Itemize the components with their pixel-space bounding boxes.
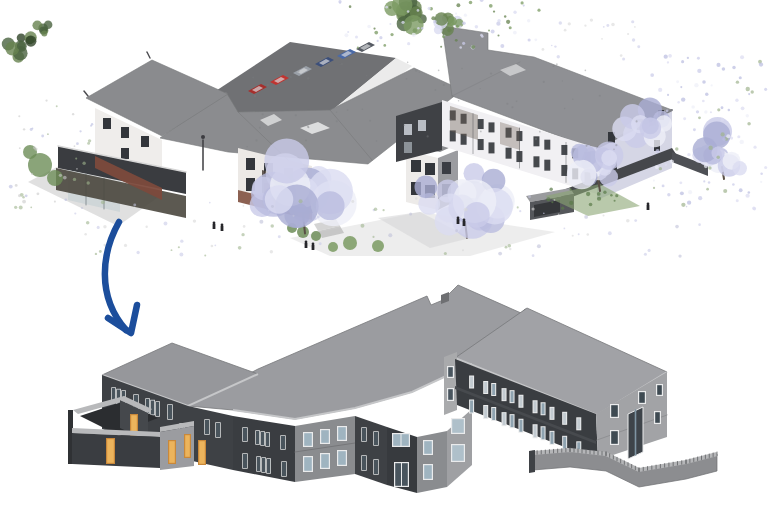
window-glass (511, 391, 514, 402)
point-noise (133, 204, 136, 207)
tree-foliage (415, 176, 438, 199)
point-noise (611, 23, 615, 27)
point-noise (41, 135, 44, 138)
point-noise (667, 94, 669, 96)
person-body (213, 224, 216, 229)
window-glass (470, 377, 473, 388)
point-noise (241, 233, 244, 236)
point-noise (103, 225, 106, 228)
door-panel (185, 435, 190, 457)
point-noise (389, 6, 392, 9)
point-noise (578, 233, 580, 235)
point-noise (443, 84, 445, 86)
point-noise (76, 142, 79, 145)
point-noise (634, 26, 636, 28)
grass-dot (610, 194, 613, 197)
point-noise (698, 116, 701, 119)
car (356, 42, 375, 52)
point-noise (462, 249, 464, 251)
point-noise (259, 220, 263, 224)
window-glass (338, 451, 346, 465)
point-noise (517, 206, 519, 208)
point-noise (339, 64, 340, 65)
point-noise (97, 226, 100, 229)
point-noise (752, 206, 756, 210)
point-noise (717, 108, 720, 111)
point-noise (452, 22, 455, 25)
point-noise (711, 84, 713, 86)
point-noise (634, 219, 637, 222)
window-glass (452, 419, 464, 433)
point-noise (267, 84, 269, 86)
point-noise (681, 60, 684, 63)
point-noise (751, 90, 754, 93)
point-noise (299, 199, 303, 203)
point-noise (421, 27, 423, 29)
point-noise (72, 113, 74, 115)
point-noise (373, 27, 375, 29)
point-noise (347, 109, 349, 111)
point-noise (559, 21, 562, 24)
point-noise (305, 139, 307, 141)
point-noise (721, 106, 724, 109)
point-noise (372, 236, 374, 238)
point-noise (113, 205, 115, 207)
point-noise (558, 214, 560, 216)
point-noise (572, 235, 574, 237)
window-lit (418, 120, 426, 131)
point-noise (25, 194, 28, 197)
window (533, 156, 539, 167)
point-noise (556, 63, 558, 65)
grass-dot (569, 201, 573, 205)
window-glass (550, 408, 553, 419)
point-noise (568, 22, 571, 25)
door-panel (169, 441, 175, 463)
point-noise (45, 99, 47, 101)
point-noise (22, 200, 26, 204)
point-noise (336, 112, 337, 113)
point-noise (471, 45, 475, 49)
point-noise (564, 108, 565, 109)
point-noise (349, 5, 352, 8)
tree-foliage (435, 12, 448, 25)
point-noise (336, 120, 338, 122)
point-noise (382, 209, 384, 211)
point-noise (341, 63, 343, 65)
person-head (463, 219, 466, 222)
point-noise (554, 45, 556, 47)
point-noise (455, 13, 457, 15)
window-glass (492, 408, 495, 420)
point-noise (18, 115, 20, 117)
point-noise (537, 244, 541, 248)
point-noise (59, 174, 62, 177)
point-noise (506, 20, 510, 24)
person-body (457, 219, 460, 224)
window (103, 118, 111, 129)
point-noise (667, 193, 670, 196)
person (221, 224, 224, 231)
point-cloud-view (2, 0, 767, 258)
point-noise (698, 223, 701, 226)
point-noise (464, 208, 468, 212)
tree-foliage (640, 117, 662, 139)
point-noise (599, 95, 601, 97)
point-noise (435, 89, 437, 91)
window-glass (542, 403, 545, 414)
window-glass (321, 430, 329, 443)
bush (343, 236, 357, 250)
point-noise (746, 114, 749, 117)
point-noise (665, 164, 668, 167)
window (533, 136, 539, 146)
window-glass (519, 396, 522, 407)
point-noise (603, 215, 605, 217)
point-noise (705, 92, 708, 95)
tree-point-cloud (2, 31, 37, 62)
point-noise (528, 38, 531, 41)
point-noise (407, 62, 409, 64)
window-glass (362, 428, 366, 441)
point-noise (664, 55, 668, 59)
point-noise (475, 25, 478, 28)
point-noise (626, 219, 630, 223)
point-noise (648, 249, 651, 252)
point-noise (584, 215, 588, 219)
point-noise (732, 66, 735, 69)
point-noise (271, 205, 274, 208)
point-noise (613, 149, 615, 151)
point-noise (553, 65, 555, 67)
point-noise (694, 83, 698, 87)
point-noise (704, 110, 707, 113)
point-noise (608, 231, 612, 235)
transformation-arrow (105, 222, 137, 333)
point-noise (290, 76, 292, 78)
bim-wall-grey (295, 416, 355, 482)
grass-dot (597, 192, 601, 196)
point-noise (74, 212, 76, 214)
grass-dot (586, 192, 590, 196)
point-noise (480, 0, 484, 2)
curved-boundary-wall (533, 450, 717, 487)
point-noise (180, 239, 183, 242)
point-noise (748, 93, 750, 95)
point-noise (209, 202, 211, 204)
person-head (213, 222, 216, 225)
point-noise (462, 42, 465, 45)
window-glass (611, 431, 618, 444)
tree-foliage (25, 36, 36, 47)
point-noise (730, 137, 733, 140)
point-noise (585, 69, 587, 71)
window-glass (611, 405, 618, 417)
point-noise (73, 178, 76, 181)
point-noise (438, 70, 440, 72)
point-noise (36, 192, 39, 195)
point-noise (270, 250, 273, 253)
point-noise (500, 44, 504, 48)
point-noise (99, 250, 102, 253)
point-noise (178, 246, 180, 248)
point-noise (462, 21, 466, 25)
person (213, 222, 216, 229)
window-glass (267, 459, 270, 473)
tree-foliage (571, 144, 588, 161)
point-noise (362, 108, 364, 110)
door-panel (107, 439, 114, 463)
point-noise (675, 225, 679, 229)
window-glass (563, 437, 566, 449)
point-noise (401, 21, 404, 24)
point-noise (262, 113, 264, 115)
point-noise (543, 81, 545, 83)
point-noise (428, 7, 431, 10)
point-noise (179, 253, 183, 257)
point-noise (427, 135, 429, 137)
point-noise (64, 198, 67, 201)
point-noise (444, 252, 447, 255)
point-noise (636, 120, 638, 122)
point-noise (708, 146, 712, 150)
point-noise (489, 4, 493, 8)
point-noise (86, 181, 89, 184)
point-noise (18, 194, 21, 197)
roof-antenna (84, 91, 88, 96)
point-noise (686, 206, 688, 208)
point-noise (675, 147, 678, 150)
window-glass (262, 458, 265, 472)
point-noise (681, 203, 685, 207)
point-noise (459, 25, 461, 27)
point-noise (81, 207, 83, 209)
point-noise (702, 80, 706, 84)
point-noise (632, 38, 635, 41)
point-noise (511, 106, 513, 108)
point-noise (534, 38, 537, 41)
window-glass (266, 433, 269, 446)
person-body (312, 245, 315, 250)
window-glass (542, 427, 545, 439)
point-noise (740, 55, 744, 59)
window-glass (448, 367, 453, 377)
door-panel (199, 441, 205, 464)
point-noise (696, 110, 699, 113)
point-noise (513, 10, 516, 13)
point-noise (764, 88, 767, 91)
window-glass (563, 413, 566, 424)
point-noise (411, 19, 414, 22)
window-glass (503, 413, 506, 425)
point-noise (670, 160, 674, 164)
window-glass (657, 385, 662, 395)
window-glass (256, 431, 259, 444)
point-noise (379, 36, 382, 39)
point-noise (469, 1, 473, 5)
point-noise (656, 149, 660, 153)
point-noise (637, 45, 640, 48)
point-noise (406, 78, 408, 80)
point-noise (47, 133, 49, 135)
window (246, 158, 255, 170)
point-noise (497, 19, 500, 22)
window-glass (216, 423, 220, 437)
point-noise (655, 165, 659, 169)
point-noise (95, 253, 97, 255)
point-noise (702, 100, 705, 103)
bim-wall-dark (355, 416, 387, 485)
point-noise (748, 191, 751, 194)
point-noise (516, 100, 518, 102)
lamp-head (201, 135, 205, 139)
curved-wall-end-cap (529, 450, 535, 473)
point-noise (509, 26, 512, 29)
window-glass (156, 402, 159, 416)
point-noise (520, 1, 523, 4)
window-glass (484, 406, 487, 418)
person (457, 217, 460, 224)
point-noise (456, 3, 460, 7)
grass-dot (561, 207, 564, 210)
point-noise (535, 138, 537, 140)
point-noise (86, 221, 90, 225)
bim-model-view (68, 285, 717, 493)
point-noise (30, 206, 32, 208)
point-noise (367, 25, 371, 29)
point-noise (456, 25, 459, 28)
window (561, 165, 567, 176)
point-noise (357, 47, 359, 49)
point-noise (523, 5, 525, 7)
point-noise (34, 147, 37, 150)
window-lit (404, 142, 412, 153)
point-noise (653, 180, 655, 182)
point-noise (440, 46, 442, 48)
point-noise (519, 210, 521, 212)
tree-point-cloud (384, 0, 426, 35)
point-noise (56, 105, 58, 107)
person (312, 243, 315, 250)
point-noise (676, 80, 679, 83)
person (647, 203, 650, 210)
person-body (221, 226, 224, 231)
point-noise (708, 181, 711, 184)
person-head (647, 203, 650, 206)
tree-foliage (601, 150, 617, 166)
person-head (305, 241, 308, 244)
point-noise (493, 10, 495, 12)
point-noise (764, 166, 767, 169)
point-noise (531, 207, 534, 210)
point-noise (361, 224, 365, 228)
tree-foliage (435, 194, 464, 223)
point-noise (513, 31, 517, 35)
point-noise (369, 120, 371, 122)
window (561, 145, 567, 155)
point-noise (490, 72, 492, 74)
point-noise (417, 9, 420, 12)
bush (372, 240, 384, 252)
point-noise (351, 200, 354, 203)
point-noise (691, 105, 695, 109)
point-noise (54, 201, 56, 203)
tree-foliage (264, 139, 309, 184)
point-noise (480, 34, 483, 37)
window-glass (424, 465, 432, 479)
point-noise (455, 39, 458, 42)
point-noise (79, 130, 81, 132)
point-noise (376, 140, 378, 142)
point-noise (431, 16, 435, 20)
grass-dot (597, 197, 601, 201)
point-noise (14, 206, 17, 209)
window-glass (304, 457, 312, 471)
point-noise (678, 254, 681, 257)
point-noise (242, 205, 244, 207)
point-noise (464, 14, 467, 17)
tree-foliage (316, 191, 345, 220)
point-noise (704, 164, 708, 168)
point-noise (745, 194, 749, 198)
point-noise (697, 69, 701, 73)
point-noise (681, 97, 685, 101)
tree-foliage (434, 25, 443, 34)
point-noise (753, 146, 756, 149)
point-noise (586, 233, 589, 236)
window (478, 139, 484, 150)
point-noise (551, 45, 553, 47)
point-noise (736, 80, 739, 83)
point-noise (668, 54, 672, 58)
window-glass (257, 457, 260, 471)
window-glass (261, 432, 264, 445)
tree-foliage (5, 42, 19, 56)
point-noise (101, 200, 105, 204)
point-noise (366, 75, 367, 76)
window-glass (243, 428, 247, 441)
window-glass (281, 436, 285, 449)
window-glass (168, 405, 172, 419)
point-noise (246, 146, 247, 147)
point-noise (721, 132, 725, 136)
point-noise (15, 184, 18, 187)
window-glass (639, 392, 645, 403)
point-noise (693, 128, 696, 131)
grass-dot (615, 194, 618, 197)
window (141, 136, 149, 147)
point-noise (145, 226, 147, 228)
window (411, 160, 421, 172)
grass-dot (546, 197, 550, 201)
window-glass (452, 445, 464, 461)
bush (47, 170, 63, 186)
point-noise (214, 244, 216, 246)
point-noise (697, 57, 700, 60)
point-noise (419, 72, 420, 73)
point-noise (527, 19, 530, 22)
point-noise (562, 80, 563, 81)
point-noise (698, 196, 702, 200)
point-noise (415, 197, 417, 199)
person-head (221, 224, 224, 227)
point-noise (506, 103, 508, 105)
point-noise (417, 27, 419, 29)
point-noise (409, 212, 412, 215)
scan-to-bim-figure (0, 0, 768, 512)
point-noise (488, 29, 490, 31)
point-noise (385, 6, 388, 9)
